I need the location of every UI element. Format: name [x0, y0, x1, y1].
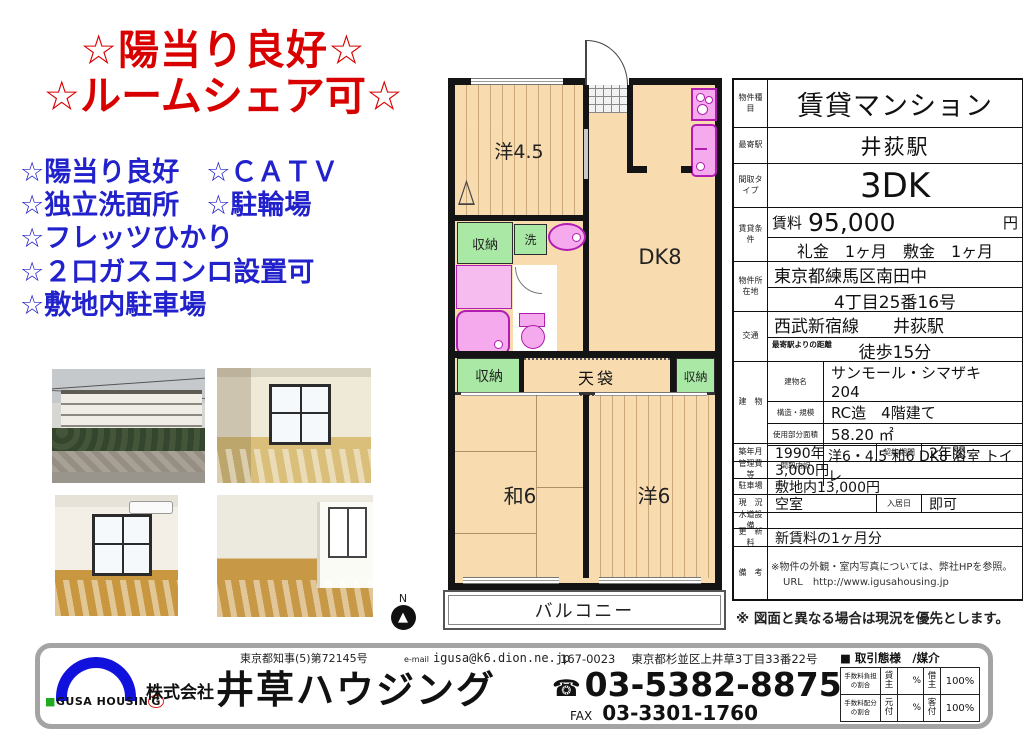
lessor-label: 貸主: [881, 668, 898, 694]
wall: [681, 166, 692, 173]
window: [599, 577, 701, 584]
window: [471, 78, 563, 85]
contract-term-label: 契約期間: [876, 444, 922, 461]
window: [328, 507, 366, 557]
floor-plan: 洋4.5 △ DK8 収納 洗: [448, 78, 722, 590]
layout-type: 3DK: [768, 164, 1022, 207]
fax-number: 03-3301-1760: [602, 701, 758, 725]
photo-building-exterior: [52, 369, 205, 483]
feature-item: ☆フレッツひかり: [20, 222, 440, 255]
balcony-label: バルコニー: [448, 595, 721, 625]
email-label: e-mail: [404, 655, 429, 664]
selling-agent-percent: 100%: [941, 695, 979, 721]
north-arrow-icon: ▲: [391, 605, 416, 630]
lessee-label: 借主: [924, 668, 941, 694]
access-sub-label: 最寄駅よりの距離: [772, 339, 832, 350]
window: [463, 577, 559, 584]
parking-label: 駐車場: [734, 479, 768, 494]
wood-floor: [55, 580, 178, 616]
contract-term: 2年間: [922, 444, 1022, 461]
access-line: 西武新宿線 井荻駅: [768, 312, 1022, 338]
drain: [696, 162, 705, 171]
tatami-floor: [217, 449, 371, 484]
toilet-bowl: [521, 325, 545, 349]
photo-western-room: [55, 495, 178, 616]
property-type: 賃貸マンション: [768, 80, 1022, 127]
feature-item: ☆独立洗面所 ☆駐輪場: [20, 189, 440, 222]
table-row: 手数料配分の割合 元付 % 客付 100%: [841, 695, 979, 721]
photo-wood-floor-room: [217, 495, 373, 617]
toilet-room: [513, 265, 557, 352]
air-conditioner: [129, 501, 173, 514]
email-line: e-mailigusa@k6.dion.ne.jp: [404, 651, 570, 665]
spec-label-station: 最寄駅: [734, 128, 768, 163]
burner: [705, 96, 713, 104]
disclaimer-note: ※ 図面と異なる場合は現況を優先とします。: [736, 607, 1023, 627]
spec-label-type: 物件種目: [734, 80, 768, 127]
rent-amount: 95,000: [808, 208, 895, 237]
lessee-percent: 100%: [941, 668, 979, 694]
office-address: 東京都杉並区上井草3丁目33番22号: [631, 652, 817, 666]
window: [269, 384, 330, 445]
floor-area: 58.20 ㎡: [824, 424, 1022, 445]
headline-line2: ☆ルームシェア可☆: [8, 74, 438, 120]
logo-green-square-icon: ■: [45, 695, 56, 708]
transaction-type-header: ■ 取引態様 /媒介: [840, 650, 980, 666]
selling-agent-label: 客付: [924, 695, 941, 721]
footer-bar: ■GUSA HOUSING 株式会社 井草ハウジング 東京都知事(5)第7214…: [35, 643, 993, 729]
headline: ☆陽当り良好☆ ☆ルームシェア可☆: [8, 28, 438, 120]
sliding-door: [461, 392, 579, 396]
structure: RC造 4階建て: [824, 402, 1022, 423]
power-line: [52, 377, 205, 390]
phone-line: ☎03-5382-8875: [552, 665, 842, 704]
balcony: バルコニー: [443, 590, 726, 630]
notes-label: 備 考: [734, 547, 768, 599]
building-name-label: 建物名: [768, 362, 824, 401]
deposit-line: 礼金 1ヶ月 敷金 1ヶ月: [768, 238, 1022, 262]
feature-list: ☆陽当り良好 ☆ＣＡＴＶ ☆独立洗面所 ☆駐輪場 ☆フレッツひかり ☆２口ガスコ…: [20, 156, 440, 322]
washbasin-icon: [548, 223, 586, 251]
building-name: サンモール・シマザキ 204: [824, 362, 1022, 401]
burner: [696, 93, 705, 102]
notes-line1: ※物件の外観・室内写真については、弊社HPを参照。: [771, 558, 1019, 573]
rent-label: 賃料: [772, 212, 802, 233]
email-address[interactable]: igusa@k6.dion.ne.jp: [433, 651, 570, 665]
feature-item: ☆敷地内駐車場: [20, 289, 440, 322]
faucet: [695, 148, 707, 150]
drain: [572, 233, 581, 242]
tatami-line: [455, 533, 536, 534]
logo-letters: GUSA HOUSIN: [56, 695, 148, 708]
spec-label-layout: 間取タイプ: [734, 164, 768, 207]
spec-label-building: 建 物: [734, 362, 768, 443]
stone-wall: [52, 451, 205, 472]
entrance-door-arc: [587, 40, 628, 85]
room-label-dk: DK8: [605, 245, 715, 269]
license-number: 東京都知事(5)第72145号: [240, 650, 368, 666]
lessor-percent: %: [898, 668, 924, 694]
renewal-fee: 新賃料の1ヶ月分: [768, 529, 1022, 546]
occupancy-status: 空室: [768, 495, 876, 512]
postal-code: 167-0023: [560, 652, 615, 666]
closet: 収納: [457, 358, 521, 394]
commission-split-label: 手数料配分の割合: [841, 695, 881, 721]
wall: [455, 351, 715, 358]
fax-label: FAX: [570, 709, 592, 723]
hedge: [52, 428, 205, 453]
phone-number: 03-5382-8875: [585, 665, 842, 704]
listing-agent-percent: %: [898, 695, 924, 721]
company-prefix: 株式会社: [146, 678, 214, 703]
closet: 収納: [457, 222, 513, 264]
north-indicator: N ▲: [388, 592, 418, 630]
tatami-line: [455, 451, 536, 452]
spec-label-access: 交通: [734, 312, 768, 361]
photo-tatami-room: [217, 368, 371, 483]
walk-time: 徒歩15分: [859, 338, 932, 363]
address-line2: 4丁目25番16号: [768, 288, 1022, 313]
closet: 収納: [676, 358, 715, 394]
notes-line2: URL http://www.igusahousing.jp: [771, 573, 1019, 588]
room-label-wa6: 和6: [485, 480, 555, 509]
burner: [697, 104, 708, 115]
wall: [627, 85, 633, 173]
fax-line: FAX03-3301-1760: [570, 701, 758, 725]
phone-icon: ☎: [552, 676, 581, 702]
washroom-floor: [456, 265, 512, 309]
feature-item: ☆陽当り良好 ☆ＣＡＴＶ: [20, 156, 440, 189]
renewal-label: 更 新 料: [734, 529, 768, 546]
property-spec-table: 物件種目 賃貸マンション 最寄駅 井荻駅 間取タイプ 3DK 賃貸条件 賃料 9…: [732, 78, 1023, 601]
address-line1: 東京都練馬区南田中: [768, 262, 1022, 288]
kitchen-sink-icon: [691, 124, 717, 177]
fee-label: 管理費等: [734, 462, 768, 478]
commission-table: 手数料負担の割合 貸主 % 借主 100% 手数料配分の割合 元付 % 客付 1…: [840, 667, 980, 722]
flyer-page: ☆陽当り良好☆ ☆ルームシェア可☆ ☆陽当り良好 ☆ＣＡＴＶ ☆独立洗面所 ☆駐…: [0, 0, 1023, 730]
laundry-space: 洗: [514, 224, 547, 255]
headline-line1: ☆陽当り良好☆: [8, 28, 438, 74]
spec-label-terms: 賃貸条件: [734, 208, 768, 261]
parking: 敷地内13,000円: [768, 479, 1022, 494]
genkan-tile: [587, 85, 627, 113]
wall: [455, 215, 589, 221]
commission-burden-label: 手数料負担の割合: [841, 668, 881, 694]
stove-icon: [691, 88, 717, 121]
nearest-station: 井荻駅: [768, 128, 1022, 163]
north-label: N: [388, 592, 418, 605]
movein-label: 入居日: [876, 495, 922, 512]
table-row: 手数料負担の割合 貸主 % 借主 100%: [841, 668, 979, 695]
equipment-value: [768, 513, 1022, 528]
listing-agent-label: 元付: [881, 695, 898, 721]
rent-unit: 円: [1003, 212, 1018, 233]
bathtub-icon: [456, 310, 510, 356]
tenbukuro: 天袋: [524, 358, 670, 396]
structure-label: 構造・規模: [768, 402, 824, 423]
transaction-type-block: ■ 取引態様 /媒介 手数料負担の割合 貸主 % 借主 100% 手数料配分の割…: [840, 650, 980, 722]
built-year: 1990年: [768, 444, 876, 461]
movein-date: 即可: [922, 495, 1022, 512]
wood-floor: [217, 580, 373, 617]
company-name: 井草ハウジング: [216, 659, 496, 714]
sliding-door: [584, 129, 588, 179]
room-label-yo45: 洋4.5: [483, 137, 555, 164]
door-swing-mark: △: [458, 173, 475, 211]
spec-label-address: 物件所在地: [734, 262, 768, 311]
drain: [494, 340, 503, 349]
wall: [627, 166, 647, 173]
door-arc: [515, 267, 542, 294]
feature-item: ☆２口ガスコンロ設置可: [20, 256, 440, 289]
window: [92, 514, 152, 576]
room-label-yo6: 洋6: [623, 480, 685, 509]
